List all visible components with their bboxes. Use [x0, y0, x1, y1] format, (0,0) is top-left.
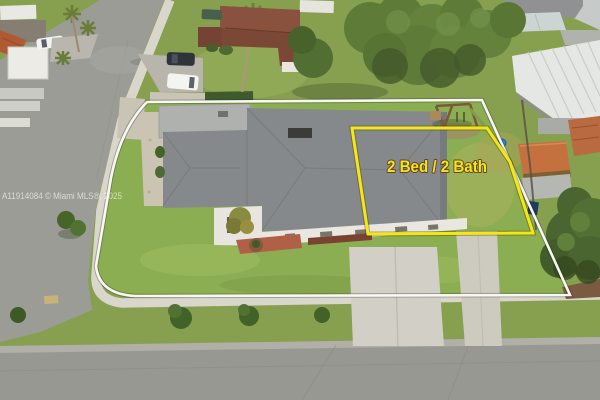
white-building	[300, 0, 334, 13]
green-car	[201, 9, 221, 20]
neighbor-roof-white	[0, 5, 36, 20]
mobile-home-roof	[0, 118, 30, 127]
palm-canopy	[55, 51, 71, 65]
planter-bush	[252, 240, 260, 248]
mls-watermark: A11914084 © Miami MLS®, 2025	[2, 191, 122, 202]
roof-vent	[218, 111, 228, 117]
palm-canopy	[80, 20, 96, 36]
shrub	[206, 44, 218, 52]
aerial-listing-photo: 2 Bed / 2 Bath A11914084 © Miami MLS®, 2…	[0, 0, 600, 400]
curb-ramp-pad	[44, 295, 58, 304]
bed-bath-label: 2 Bed / 2 Bath	[387, 158, 487, 176]
dark-suv	[167, 52, 195, 66]
aerial-scene: 2 Bed / 2 Bath A11914084 © Miami MLS®, 2…	[0, 0, 600, 400]
mobile-home-roof	[0, 101, 40, 111]
side-bush	[155, 146, 165, 158]
shrub	[219, 45, 233, 55]
gravel	[148, 191, 151, 194]
play-platform	[430, 111, 441, 120]
white-van	[167, 73, 199, 91]
gravel	[149, 139, 152, 142]
chimney	[288, 128, 312, 138]
carport-roof	[8, 47, 48, 79]
roof-extension	[198, 27, 224, 47]
tree-shadow	[292, 83, 388, 101]
side-bush	[155, 166, 165, 178]
mobile-home-roof	[0, 88, 44, 99]
